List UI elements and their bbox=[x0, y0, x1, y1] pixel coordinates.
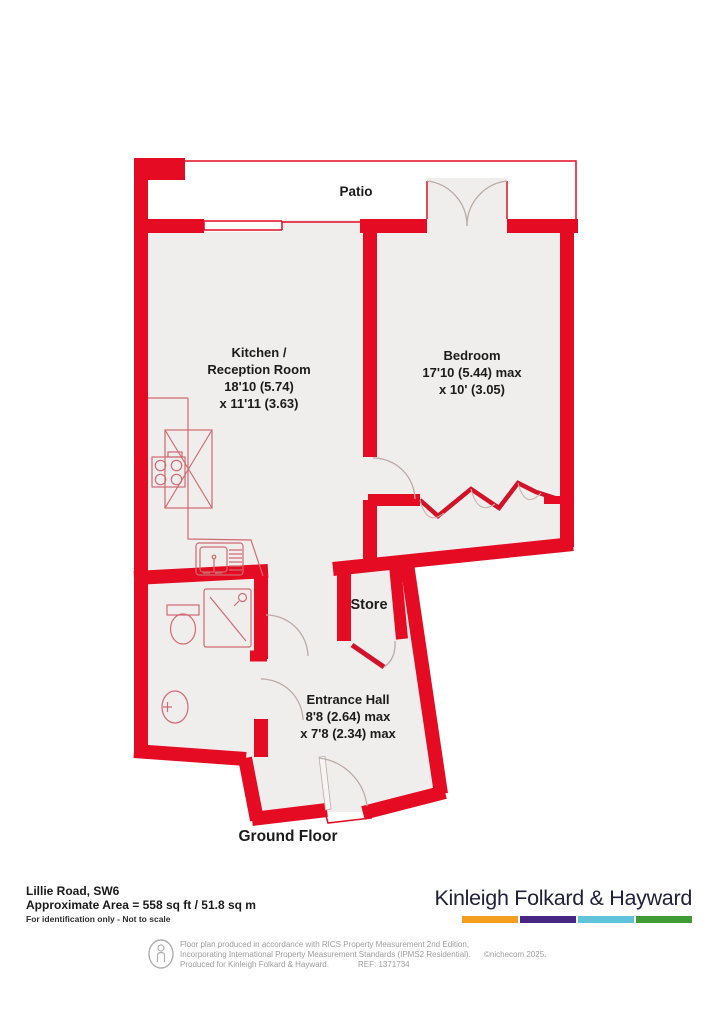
floorplan-page: { "plan": { "patio": "Patio", "kitchen":… bbox=[0, 0, 715, 1033]
patio-label: Patio bbox=[339, 184, 372, 199]
kitchen-dim-1: 18'10 (5.74) bbox=[224, 379, 294, 394]
area-line: Approximate Area = 558 sq ft / 51.8 sq m bbox=[26, 898, 256, 912]
disclaimer-copyright: ©nichecom 2025. bbox=[484, 950, 546, 959]
disclaimer-line-2: Incorporating International Property Mea… bbox=[180, 950, 471, 959]
person-icon bbox=[146, 938, 176, 971]
hall-dim-2: x 7'8 (2.34) max bbox=[300, 726, 396, 741]
kitchen-dim-2: x 11'11 (3.63) bbox=[220, 396, 299, 411]
bedroom-dim-2: x 10' (3.05) bbox=[439, 382, 505, 397]
disclaimer-line-1: Floor plan produced in accordance with R… bbox=[180, 940, 469, 949]
brand-bar-purple bbox=[520, 916, 576, 923]
wall-bathroom-bottom bbox=[134, 751, 246, 759]
brand-bar-green bbox=[636, 916, 692, 923]
room-entrance-hall: Entrance Hall 8'8 (2.64) max x 7'8 (2.34… bbox=[300, 692, 396, 741]
address-line: Lillie Road, SW6 bbox=[26, 884, 119, 898]
floor-plan: Patio Kitchen / Reception Room 18'10 (5.… bbox=[0, 0, 715, 1033]
brand-bar-cyan bbox=[578, 916, 634, 923]
wall-store-right bbox=[395, 565, 402, 639]
disclaimer-ref: REF: 1371734 bbox=[358, 960, 410, 969]
wall-hall-bottom-left bbox=[252, 810, 327, 819]
identification-note: For identification only - Not to scale bbox=[26, 914, 171, 924]
brand-color-bar bbox=[462, 916, 692, 923]
bedroom-dim-1: 17'10 (5.44) max bbox=[422, 365, 522, 380]
brand-logo-text: Kinleigh Folkard & Hayward bbox=[435, 886, 693, 911]
hall-dim-1: 8'8 (2.64) max bbox=[306, 709, 392, 724]
disclaimer-line-3: Produced for Kinleigh Folkard & Hayward. bbox=[180, 960, 329, 969]
bedroom-label: Bedroom bbox=[443, 348, 500, 363]
floor-title: Ground Floor bbox=[238, 828, 337, 845]
brand-bar-orange bbox=[462, 916, 518, 923]
patio-outline bbox=[185, 161, 576, 219]
store-label: Store bbox=[350, 597, 387, 613]
hall-label: Entrance Hall bbox=[306, 692, 389, 707]
kitchen-label-2: Reception Room bbox=[207, 362, 310, 377]
kitchen-label-1: Kitchen / bbox=[232, 345, 287, 360]
